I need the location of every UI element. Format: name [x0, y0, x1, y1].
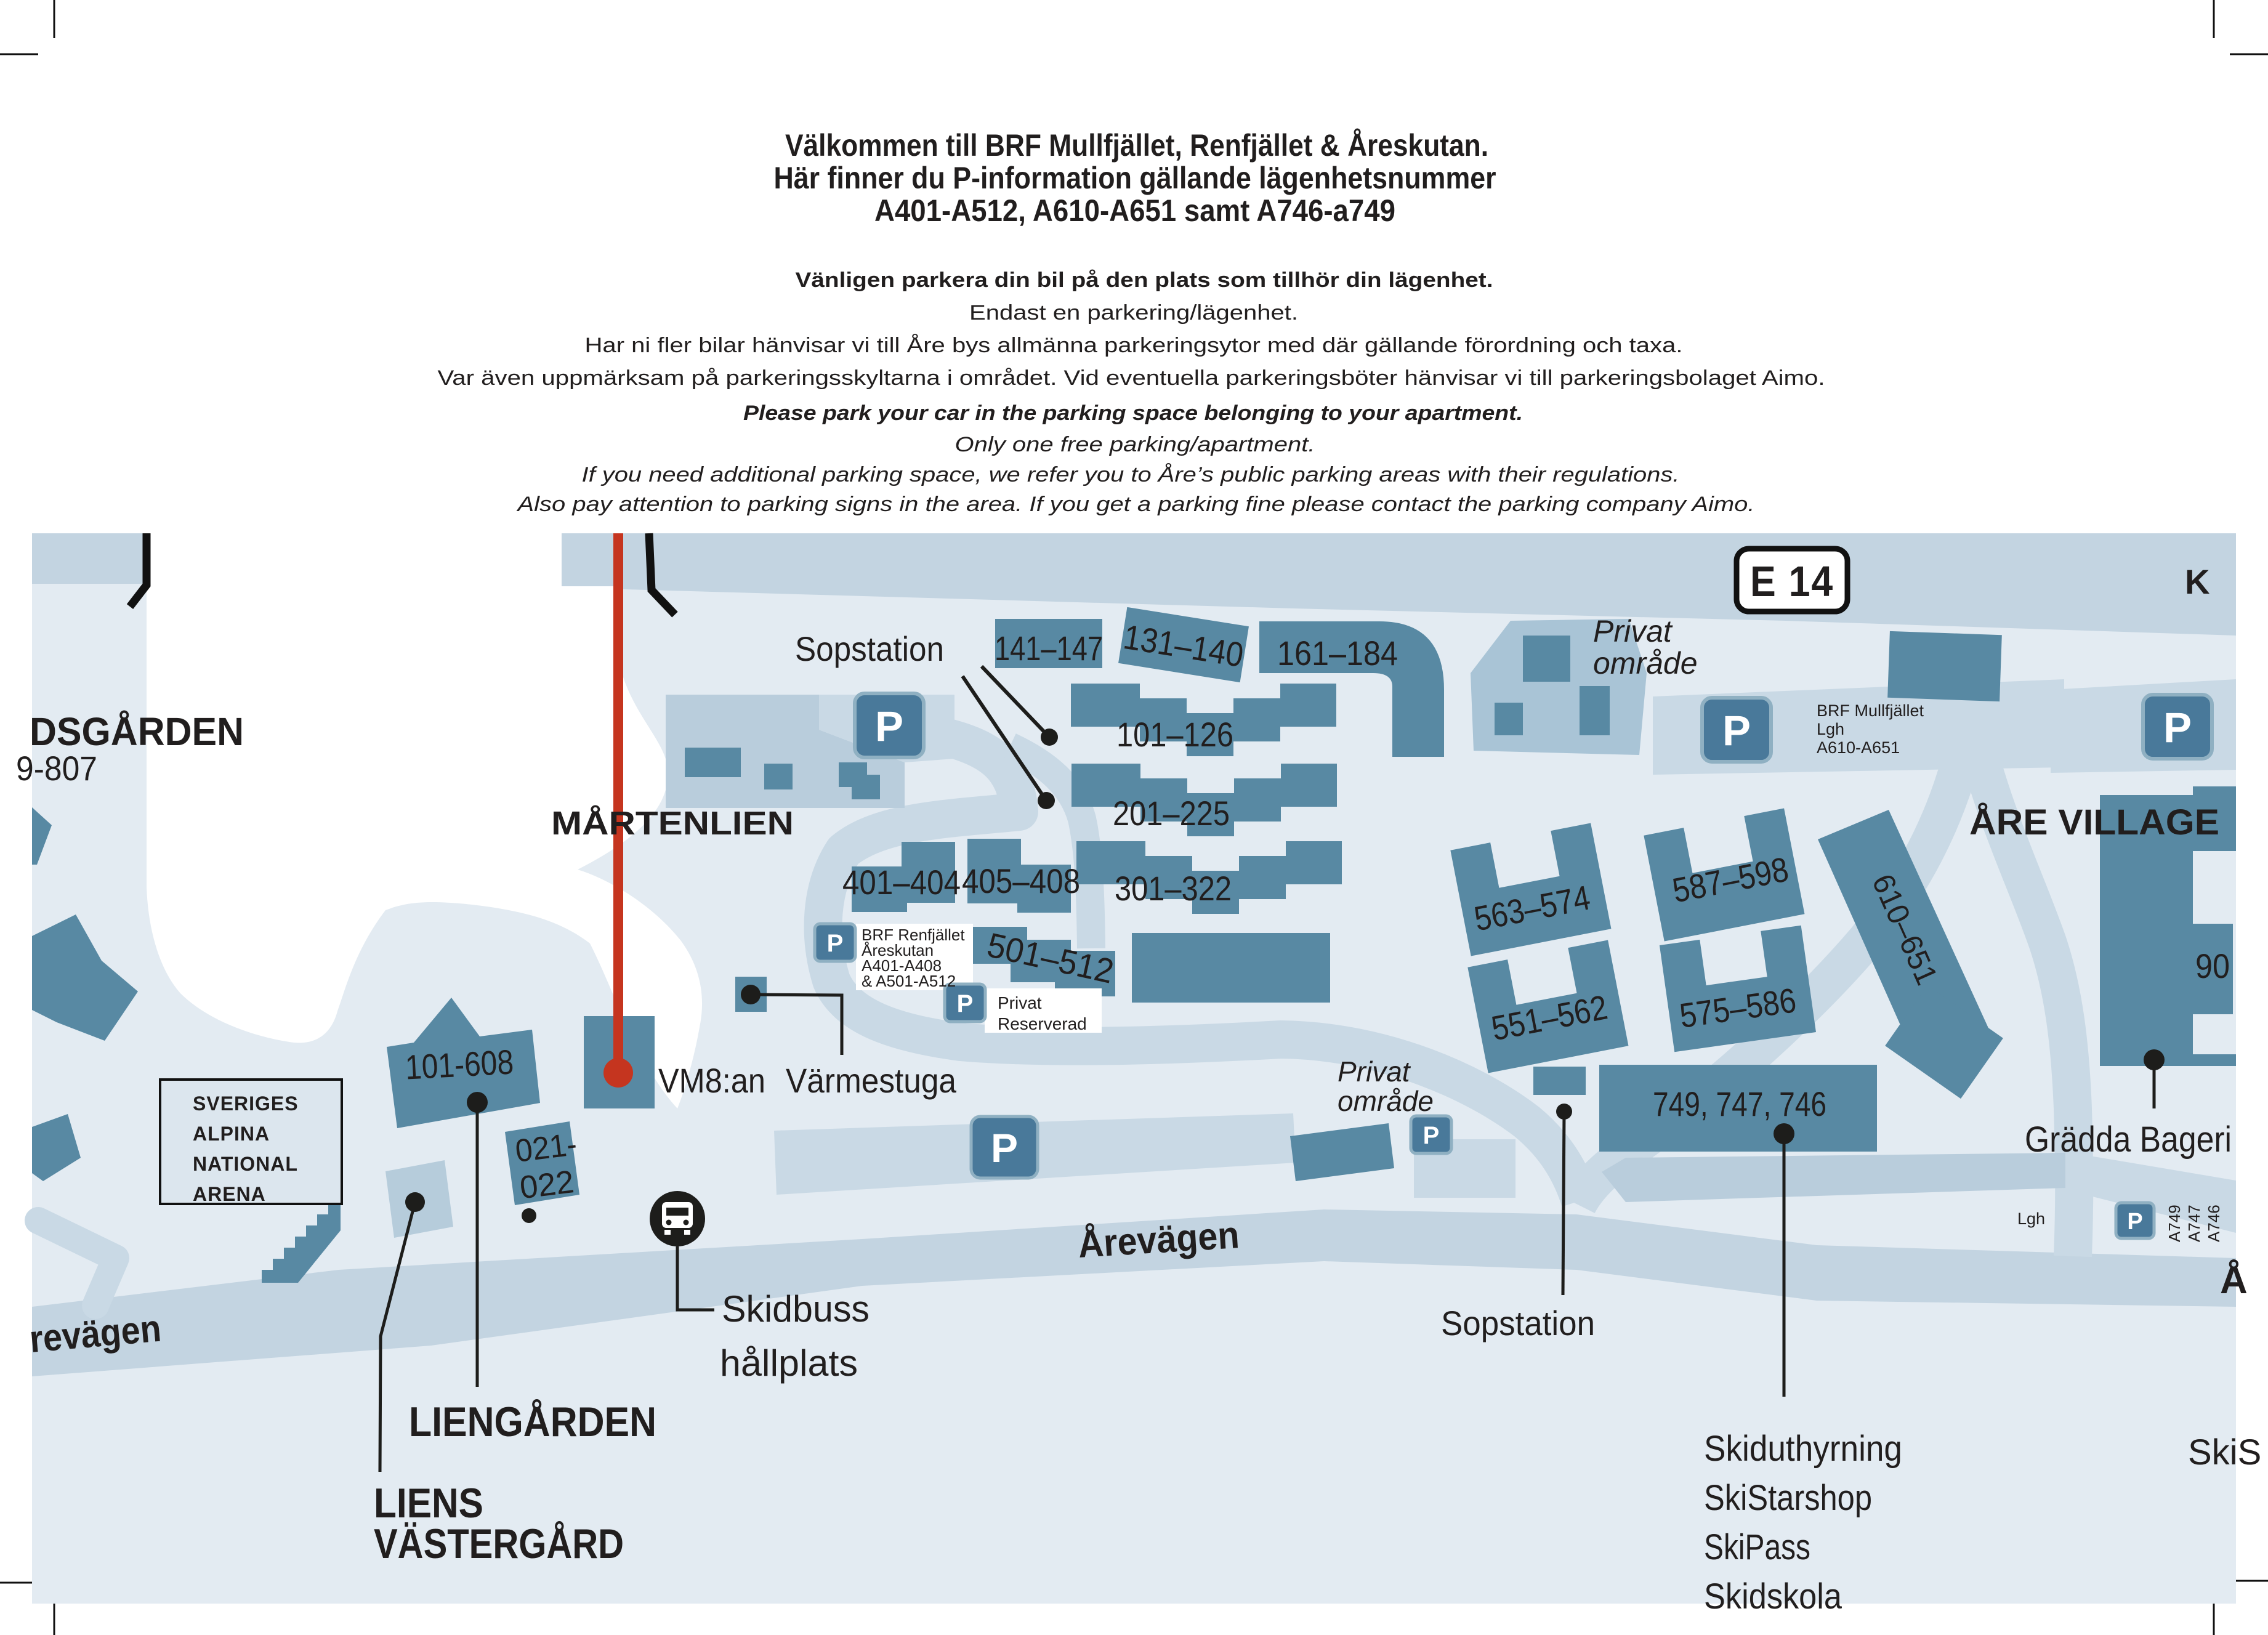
svg-text:90: 90	[2195, 947, 2230, 985]
svg-text:405–408: 405–408	[962, 862, 1080, 900]
svg-text:SVERIGES: SVERIGES	[193, 1092, 299, 1115]
svg-text:If you need additional parking: If you need additional parking space, we…	[582, 463, 1680, 486]
svg-text:Välkommen till BRF Mullfjället: Välkommen till BRF Mullfjället, Renfjäll…	[785, 128, 1488, 163]
svg-text:NATIONAL: NATIONAL	[193, 1153, 298, 1175]
svg-text:SkiStarshop: SkiStarshop	[1704, 1478, 1872, 1518]
svg-text:A610-A651: A610-A651	[1817, 738, 1900, 757]
svg-text:201–225: 201–225	[1113, 794, 1230, 833]
svg-text:Värmestuga: Värmestuga	[786, 1061, 957, 1100]
svg-text:MÅRTENLIEN: MÅRTENLIEN	[551, 805, 794, 842]
svg-text:Här finner du P-information gä: Här finner du P-information gällande läg…	[774, 161, 1496, 195]
svg-text:P: P	[1722, 707, 1751, 754]
svg-text:022: 022	[518, 1164, 576, 1206]
svg-text:LIENS: LIENS	[374, 1480, 483, 1527]
svg-text:A747: A747	[2185, 1205, 2203, 1242]
svg-text:DSGÅRDEN: DSGÅRDEN	[30, 709, 244, 754]
svg-text:Var även uppmärksam på parkeri: Var även uppmärksam på parkeringsskyltar…	[438, 366, 1825, 390]
svg-text:Please park your car in the pa: Please park your car in the parking spac…	[743, 402, 1523, 425]
svg-text:Endast en parkering/lägenhet.: Endast en parkering/lägenhet.	[969, 301, 1298, 325]
svg-text:VÄSTERGÅRD: VÄSTERGÅRD	[374, 1520, 624, 1567]
svg-text:hållplats: hållplats	[720, 1342, 858, 1384]
svg-text:ALPINA: ALPINA	[193, 1123, 270, 1145]
svg-text:P: P	[875, 703, 903, 750]
svg-text:BRF Mullfjället: BRF Mullfjället	[1817, 701, 1924, 720]
svg-text:Vänligen parkera din bil på de: Vänligen parkera din bil på den plats so…	[796, 268, 1493, 292]
svg-text:Har ni fler bilar hänvisar vi: Har ni fler bilar hänvisar vi till Åre b…	[585, 334, 1683, 357]
svg-text:P: P	[827, 930, 844, 957]
svg-text:A746: A746	[2205, 1205, 2223, 1242]
svg-text:9-807: 9-807	[16, 749, 97, 788]
svg-text:Only one free parking/apartmen: Only one free parking/apartment.	[955, 433, 1315, 456]
svg-text:P: P	[991, 1125, 1018, 1171]
svg-text:Grädda Bageri: Grädda Bageri	[2025, 1120, 2232, 1160]
svg-text:Skidskola: Skidskola	[1704, 1576, 1842, 1617]
svg-text:141–147: 141–147	[995, 629, 1103, 668]
svg-text:område: område	[1338, 1085, 1434, 1117]
svg-text:Å: Å	[2220, 1259, 2248, 1302]
svg-text:K: K	[2185, 562, 2209, 601]
svg-text:Sopstation: Sopstation	[1441, 1304, 1595, 1342]
svg-text:ARENA: ARENA	[193, 1183, 266, 1205]
svg-text:Skidbuss: Skidbuss	[722, 1288, 870, 1330]
svg-text:Privat: Privat	[1593, 614, 1673, 648]
svg-text:021-: 021-	[514, 1126, 579, 1169]
svg-text:P: P	[957, 990, 974, 1017]
svg-text:ÅRE VILLAGE: ÅRE VILLAGE	[1969, 802, 2219, 842]
svg-text:A401-A512, A610-A651 samt A746: A401-A512, A610-A651 samt A746-a749	[874, 193, 1395, 228]
svg-text:Lgh: Lgh	[1817, 720, 1844, 738]
svg-text:E 14: E 14	[1750, 557, 1834, 605]
svg-text:P: P	[1423, 1122, 1440, 1149]
svg-text:& A501-A512: & A501-A512	[862, 972, 956, 990]
svg-text:P: P	[2127, 1209, 2142, 1235]
svg-text:Privat: Privat	[1338, 1056, 1411, 1088]
svg-text:Reserverad: Reserverad	[998, 1014, 1087, 1033]
svg-text:område: område	[1593, 646, 1698, 680]
svg-text:161–184: 161–184	[1277, 634, 1398, 672]
svg-text:749, 747, 746: 749, 747, 746	[1653, 1084, 1826, 1123]
svg-text:301–322: 301–322	[1115, 869, 1232, 908]
svg-text:Skiduthyrning: Skiduthyrning	[1704, 1429, 1902, 1469]
svg-text:101–126: 101–126	[1116, 715, 1233, 754]
svg-text:Sopstation: Sopstation	[795, 629, 944, 668]
svg-text:LIENGÅRDEN: LIENGÅRDEN	[409, 1399, 656, 1445]
svg-text:A749: A749	[2165, 1205, 2184, 1242]
svg-text:VM8:an: VM8:an	[658, 1061, 765, 1100]
svg-text:SkiS: SkiS	[2188, 1432, 2261, 1472]
svg-text:Lgh: Lgh	[2017, 1209, 2045, 1228]
svg-text:P: P	[2163, 704, 2192, 751]
svg-text:Also pay attention to parking: Also pay attention to parking signs in t…	[516, 493, 1754, 516]
svg-text:101-608: 101-608	[404, 1042, 514, 1086]
svg-text:401–404: 401–404	[842, 863, 961, 902]
svg-text:Privat: Privat	[998, 993, 1042, 1012]
svg-text:SkiPass: SkiPass	[1704, 1527, 1810, 1567]
